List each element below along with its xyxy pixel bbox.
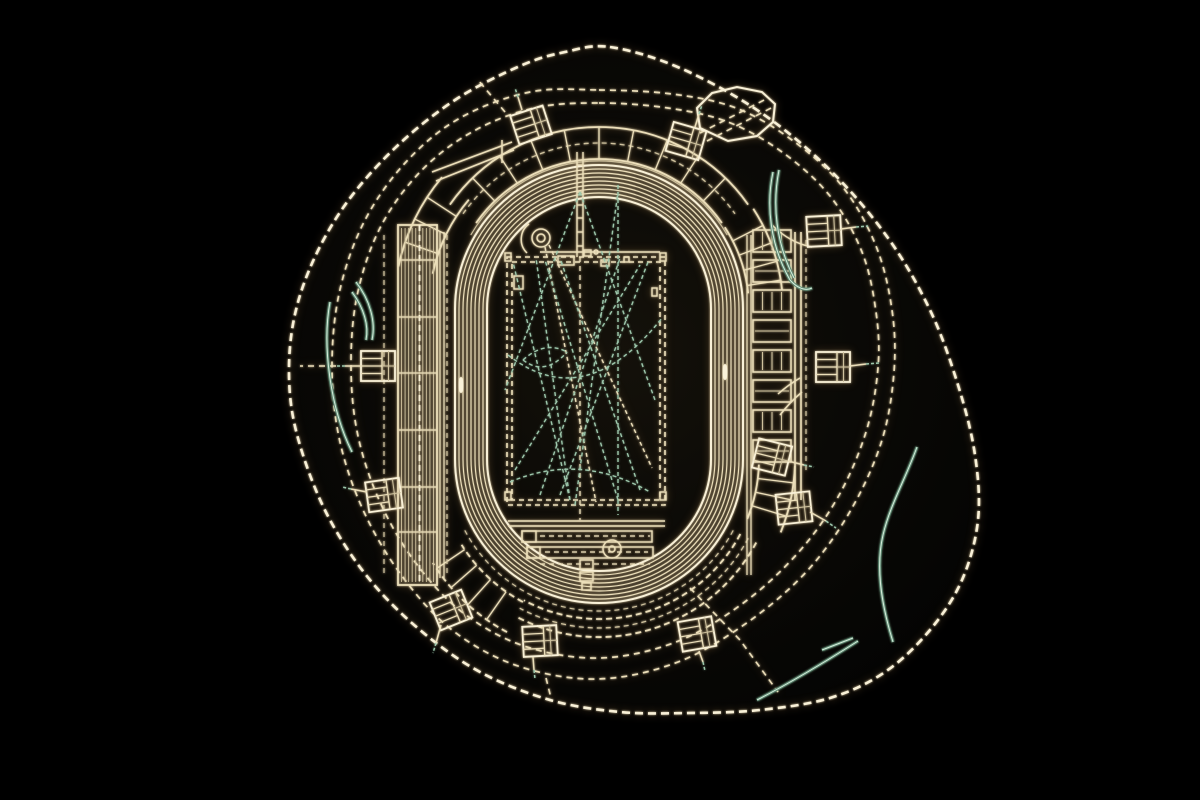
slide-photograph [0, 0, 1200, 800]
site-ground [289, 46, 979, 713]
gate-stalk-green-dash [866, 363, 879, 364]
track-marker [723, 364, 728, 380]
gate-inner-line [828, 230, 841, 231]
gate-stalk-green-dash [433, 643, 436, 653]
gate-stalk-green-dash [856, 226, 868, 227]
stadium-site-plan [0, 0, 1200, 800]
track-marker [459, 377, 464, 393]
gate-stalk [533, 657, 534, 670]
gate-inner-line [544, 640, 557, 641]
